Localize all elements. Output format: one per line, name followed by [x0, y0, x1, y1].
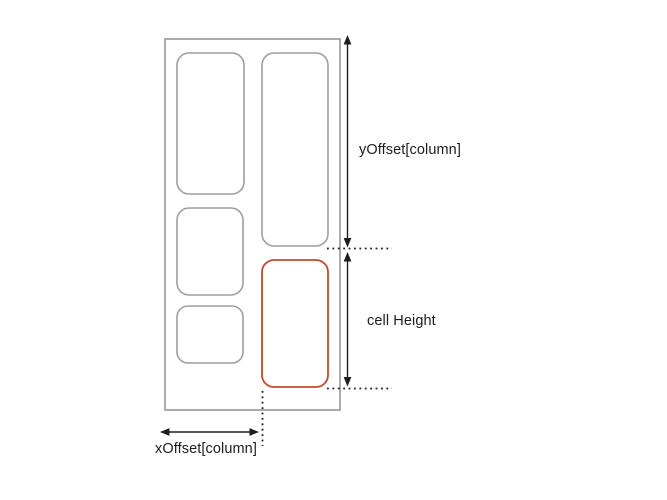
layout-diagram-canvas: yOffset[column] cell Height xOffset[colu…: [0, 0, 667, 500]
cell-left-2: [177, 208, 243, 295]
y-offset-arrowhead-down-icon: [344, 238, 352, 248]
highlighted-cell: [262, 260, 328, 387]
layout-diagram: [0, 0, 667, 500]
cell-height-arrowhead-up-icon: [344, 252, 352, 262]
cell-right-top: [262, 53, 328, 246]
y-offset-arrowhead-up-icon: [344, 35, 352, 45]
container-outline: [165, 39, 340, 410]
x-offset-label: xOffset[column]: [155, 440, 257, 458]
x-offset-arrowhead-left-icon: [160, 428, 170, 436]
x-offset-arrowhead-right-icon: [250, 428, 260, 436]
cell-height-label: cell Height: [367, 312, 436, 330]
cell-left-3: [177, 306, 243, 363]
cell-left-1: [177, 53, 244, 194]
cell-height-arrowhead-down-icon: [344, 377, 352, 387]
y-offset-label: yOffset[column]: [359, 141, 461, 159]
